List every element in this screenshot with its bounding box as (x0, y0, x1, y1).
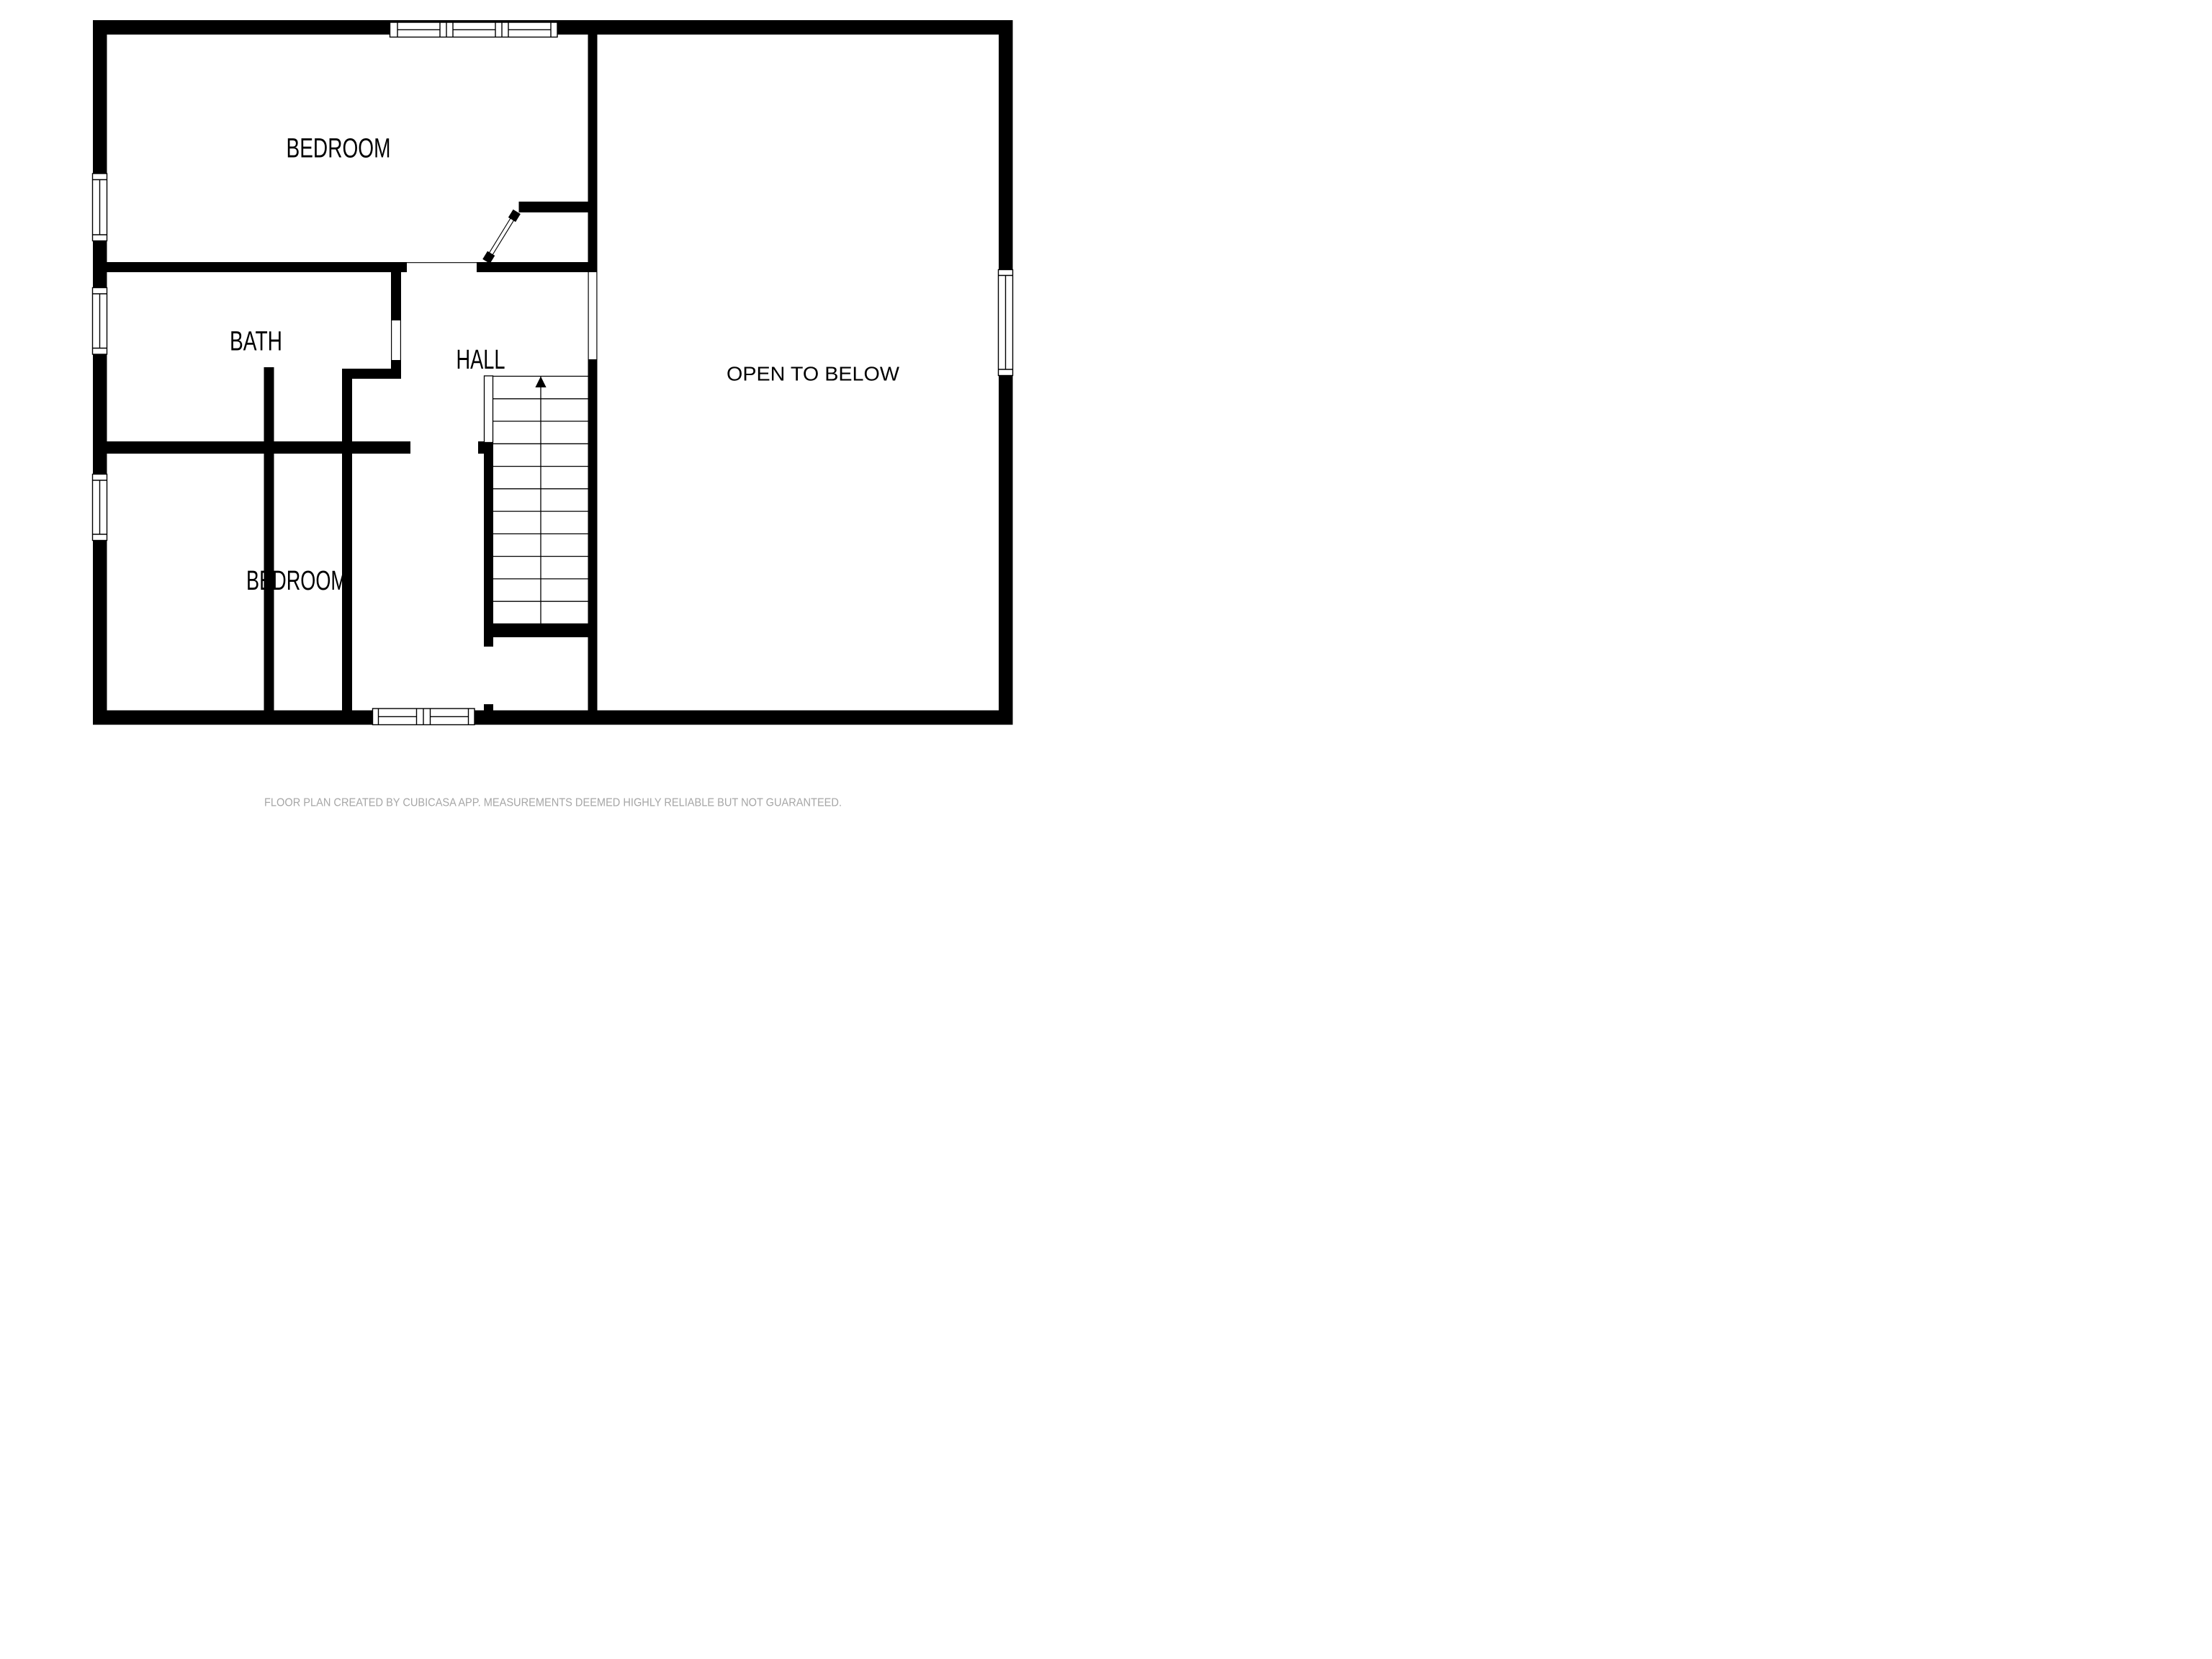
wall-stair-left-stub (484, 704, 493, 711)
wall-bedroom-bath-divider (107, 262, 408, 272)
room-label-hall: HALL (457, 345, 505, 375)
wall-hall-north-segment (477, 262, 598, 272)
wall-bath-stub-vertical-left (264, 367, 274, 711)
page-background (0, 0, 1106, 829)
room-label-open-to-below: OPEN TO BELOW (727, 363, 900, 385)
wall-stair-left (484, 454, 493, 647)
window-symbol-top-triple (390, 22, 558, 37)
wall-central-upper (588, 35, 598, 271)
wall-bath-stub-vertical-right (342, 369, 352, 711)
wall-exterior-bottom (93, 711, 1013, 725)
wall-exterior-left (93, 20, 107, 725)
footer-disclaimer: FLOOR PLAN CREATED BY CUBICASA APP. MEAS… (264, 797, 842, 809)
window-symbol-bottom-double (373, 709, 475, 725)
wall-bottom-bedroom-north (107, 441, 411, 454)
room-label-bath: BATH (230, 327, 282, 357)
floor-plan-canvas: BEDROOM BATH HALL OPEN TO BELOW BEDROOM … (0, 0, 1106, 829)
wall-stairwell-bottom (493, 624, 588, 638)
window-symbol-right (999, 270, 1013, 376)
room-label-bedroom-top: BEDROOM (287, 134, 391, 164)
stair-railing (485, 376, 493, 443)
wall-bath-right-upper (391, 272, 401, 320)
window-symbol-left-lower (93, 475, 107, 541)
room-label-bedroom-bottom: BEDROOM (246, 566, 347, 596)
wall-bedroom-south-stub (519, 202, 598, 212)
window-symbol-left-upper (93, 174, 107, 241)
floor-plan-page: BEDROOM BATH HALL OPEN TO BELOW BEDROOM … (0, 0, 1106, 829)
wall-central-lower (588, 359, 598, 711)
wall-bath-right-lower (391, 360, 401, 379)
window-symbol-left-middle (93, 288, 107, 355)
wall-bottom-bedroom-north-stub (478, 441, 493, 454)
